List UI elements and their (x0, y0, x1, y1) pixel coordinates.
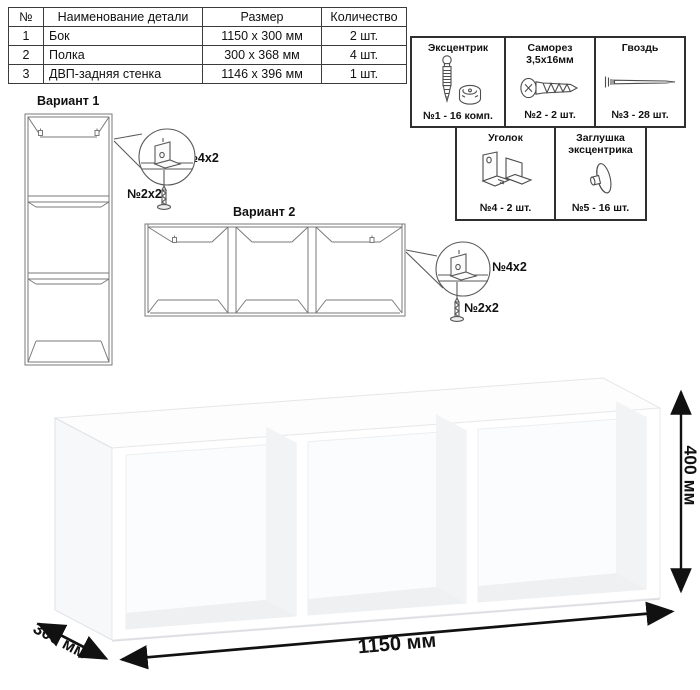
shelf-compartment (126, 427, 296, 629)
shelf-compartment (478, 401, 646, 602)
shelf-bracket-marks (39, 129, 100, 136)
shelf-compartment (308, 414, 466, 615)
part-qty: 1 шт. (322, 65, 407, 84)
part-qty: 4 шт. (322, 46, 407, 65)
part-size: 1150 x 300 мм (203, 27, 322, 46)
height-dimension-label: 400 мм (680, 444, 700, 508)
hardware-name: Саморез3,5х16мм (526, 42, 574, 67)
variant1-callout (114, 129, 195, 209)
hardware-name: Эксцентрик (428, 42, 488, 54)
part-num: 3 (9, 65, 44, 84)
assembly-instruction-sheet: № Наименование детали Размер Количество … (0, 0, 700, 690)
variant2-wireframe (145, 224, 405, 316)
parts-table: № Наименование детали Размер Количество … (8, 7, 407, 84)
part-qty: 2 шт. (322, 27, 407, 46)
table-row: 3 ДВП-задняя стенка 1146 x 396 мм 1 шт. (9, 65, 407, 84)
part-name: Бок (44, 27, 203, 46)
col-header-name: Наименование детали (44, 8, 203, 27)
parts-table-header-row: № Наименование детали Размер Количество (9, 8, 407, 27)
screw-glyph (158, 186, 171, 209)
table-row: 1 Бок 1150 x 300 мм 2 шт. (9, 27, 407, 46)
shelf-bracket-marks (173, 236, 375, 243)
part-size: 300 x 368 мм (203, 46, 322, 65)
part-size: 1146 x 396 мм (203, 65, 322, 84)
part-name: ДВП-задняя стенка (44, 65, 203, 84)
table-row: 2 Полка 300 x 368 мм 4 шт. (9, 46, 407, 65)
hardware-name: Гвоздь (622, 42, 659, 54)
col-header-qty: Количество (322, 8, 407, 27)
part-num: 2 (9, 46, 44, 65)
part-num: 1 (9, 27, 44, 46)
col-header-num: № (9, 8, 44, 27)
screw-glyph (451, 298, 464, 321)
shelf-left-face (55, 418, 112, 640)
col-header-size: Размер (203, 8, 322, 27)
variant1-wireframe (25, 114, 112, 365)
variants-diagram (0, 85, 700, 370)
part-name: Полка (44, 46, 203, 65)
variant2-callout (406, 242, 490, 321)
